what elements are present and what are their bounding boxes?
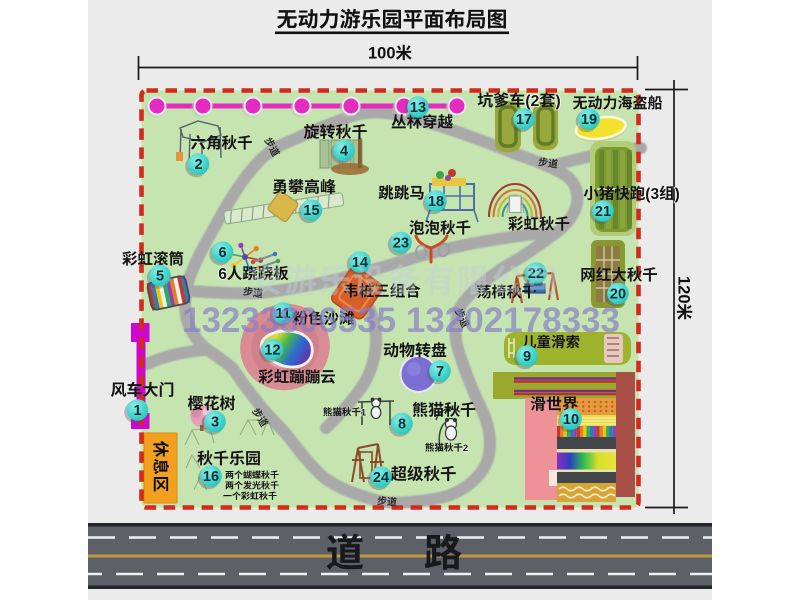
svg-text:16: 16 xyxy=(203,469,219,485)
svg-text:10: 10 xyxy=(563,412,579,428)
svg-text:19: 19 xyxy=(581,112,597,128)
svg-text:21: 21 xyxy=(595,204,611,220)
svg-text:13233806535 13202178333: 13233806535 13202178333 xyxy=(182,301,620,340)
svg-text:6: 6 xyxy=(218,266,227,283)
svg-text:8: 8 xyxy=(398,417,406,433)
svg-text:): ) xyxy=(675,186,680,203)
svg-text:(2: (2 xyxy=(525,93,539,110)
svg-text:5: 5 xyxy=(156,269,164,285)
svg-text:12: 12 xyxy=(264,343,280,359)
svg-text:100: 100 xyxy=(368,45,396,63)
svg-text:1: 1 xyxy=(133,403,141,419)
svg-text:2: 2 xyxy=(463,443,468,454)
svg-text:6: 6 xyxy=(218,245,226,261)
svg-text:): ) xyxy=(555,93,560,110)
svg-text:3: 3 xyxy=(211,415,219,431)
svg-text:23: 23 xyxy=(393,236,409,252)
svg-text:2: 2 xyxy=(194,157,202,173)
svg-text:15: 15 xyxy=(303,203,319,219)
svg-text:13: 13 xyxy=(410,100,426,116)
svg-text:(3: (3 xyxy=(645,186,659,203)
svg-text:7: 7 xyxy=(436,364,444,380)
svg-text:1: 1 xyxy=(361,407,367,418)
svg-text:9: 9 xyxy=(523,349,531,365)
svg-text:24: 24 xyxy=(373,470,389,486)
svg-text:17: 17 xyxy=(516,112,532,128)
svg-text:120: 120 xyxy=(674,276,692,304)
svg-text:4: 4 xyxy=(340,144,348,160)
svg-text:18: 18 xyxy=(428,194,444,210)
